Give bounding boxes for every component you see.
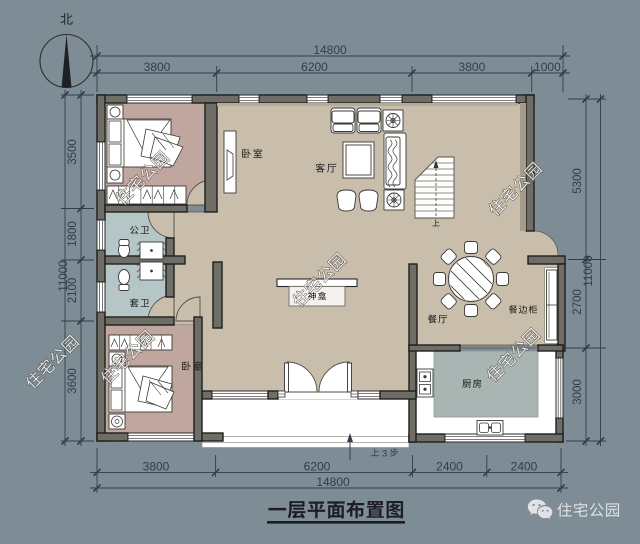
svg-text:2400: 2400 <box>511 460 538 474</box>
svg-text:1000: 1000 <box>534 60 561 74</box>
svg-text:5300: 5300 <box>572 168 584 194</box>
svg-text:3: 3 <box>382 449 387 460</box>
svg-text:2700: 2700 <box>572 289 584 315</box>
svg-text:6200: 6200 <box>304 460 331 474</box>
svg-text:2400: 2400 <box>436 460 463 474</box>
svg-text:6200: 6200 <box>301 60 328 74</box>
svg-text:3800: 3800 <box>459 60 486 74</box>
svg-text:14800: 14800 <box>316 475 350 489</box>
svg-text:3800: 3800 <box>143 460 170 474</box>
svg-text:3500: 3500 <box>67 139 79 165</box>
svg-text:2100: 2100 <box>67 278 79 304</box>
svg-text:3600: 3600 <box>67 368 79 394</box>
svg-text:3800: 3800 <box>144 60 171 74</box>
svg-text:11000: 11000 <box>583 255 595 286</box>
svg-text:1800: 1800 <box>67 221 79 247</box>
svg-text:3000: 3000 <box>572 379 584 405</box>
svg-text:14800: 14800 <box>313 43 347 57</box>
